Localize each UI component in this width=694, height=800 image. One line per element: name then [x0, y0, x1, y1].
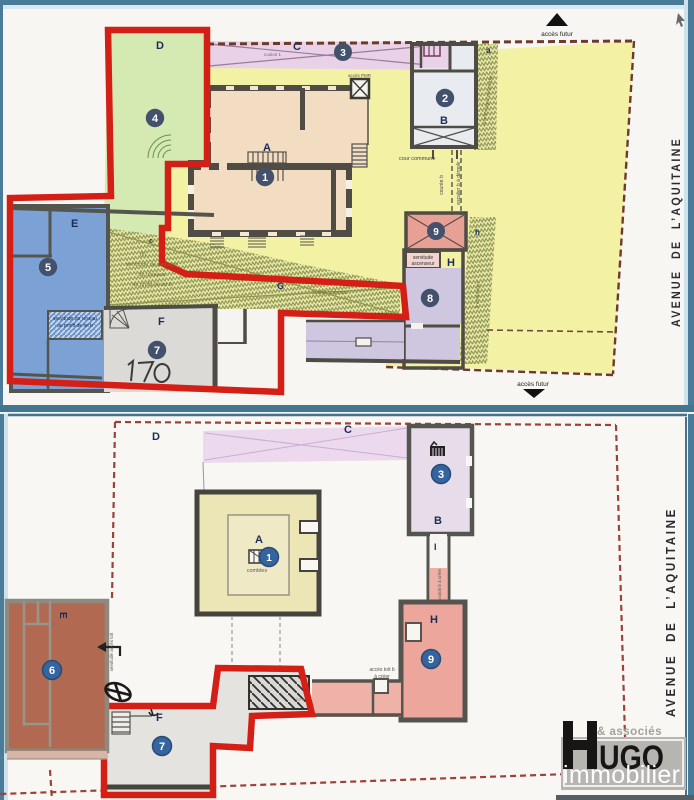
svg-text:combles: combles: [247, 568, 268, 574]
svg-text:2: 2: [442, 93, 448, 105]
svg-text:8: 8: [427, 293, 433, 305]
svg-text:D: D: [152, 431, 160, 443]
svg-text:7: 7: [159, 741, 165, 753]
svg-text:I: I: [434, 542, 437, 552]
svg-text:à créer: à créer: [374, 674, 390, 680]
svg-text:9: 9: [433, 227, 439, 238]
svg-text:1: 1: [262, 172, 268, 184]
svg-text:de réseaux: de réseaux: [138, 272, 165, 278]
svg-text:E: E: [71, 218, 78, 230]
svg-text:cour commune: cour commune: [399, 156, 435, 162]
svg-text:& associés: & associés: [597, 726, 662, 738]
svg-text:AVENUE DE L’AQUITAINE: AVENUE DE L’AQUITAINE: [671, 137, 683, 327]
svg-text:couloir 1: couloir 1: [264, 52, 282, 57]
svg-text:B: B: [440, 115, 448, 127]
svg-text:C: C: [293, 41, 301, 53]
svg-text:9: 9: [428, 654, 434, 666]
svg-text:accès PMR: accès PMR: [348, 73, 372, 78]
svg-text:7: 7: [154, 345, 160, 357]
svg-text:accès toit b: accès toit b: [369, 667, 395, 673]
svg-text:servitude de réseau: servitude de réseau: [53, 316, 97, 322]
svg-text:1: 1: [266, 553, 272, 564]
svg-text:escalier b à démolir: escalier b à démolir: [456, 161, 462, 205]
svg-text:AVENUE DE L’AQUITAINE: AVENUE DE L’AQUITAINE: [663, 507, 678, 717]
svg-text:F: F: [156, 712, 163, 724]
svg-text:accès futur: accès futur: [541, 31, 574, 38]
svg-text:A: A: [255, 534, 263, 546]
svg-text:E: E: [57, 612, 68, 619]
svg-text:4: 4: [152, 113, 159, 125]
svg-text:lot 4: lot 4: [296, 697, 305, 702]
svg-text:H: H: [430, 614, 438, 626]
svg-text:3: 3: [340, 48, 346, 59]
svg-text:courée b: courée b: [439, 175, 445, 195]
svg-text:a: a: [486, 46, 491, 55]
svg-text:au profit de lot b: au profit de lot b: [132, 282, 171, 288]
svg-text:A: A: [263, 142, 271, 154]
svg-text:servitude accès toit: servitude accès toit: [109, 632, 114, 671]
svg-text:accès futur: accès futur: [517, 381, 550, 388]
svg-text:G: G: [277, 281, 284, 291]
svg-text:c: c: [149, 238, 153, 245]
svg-text:D: D: [156, 40, 164, 52]
svg-text:au profit de lot b: au profit de lot b: [57, 323, 93, 329]
svg-text:3: 3: [438, 469, 444, 481]
svg-text:B: B: [434, 515, 442, 527]
svg-text:servitude de passage: servitude de passage: [126, 262, 178, 268]
svg-text:6: 6: [49, 665, 55, 677]
svg-text:immobilier: immobilier: [563, 761, 680, 789]
svg-text:F: F: [158, 316, 165, 328]
svg-text:couloir b à créer: couloir b à créer: [437, 568, 442, 601]
svg-text:ascenseur: ascenseur: [411, 261, 434, 267]
svg-text:h: h: [475, 228, 480, 237]
svg-text:C: C: [344, 424, 352, 436]
svg-text:(h): (h): [140, 252, 146, 258]
svg-text:couloir commun: couloir commun: [312, 290, 348, 296]
svg-text:H: H: [447, 257, 455, 269]
svg-text:5: 5: [45, 262, 51, 274]
